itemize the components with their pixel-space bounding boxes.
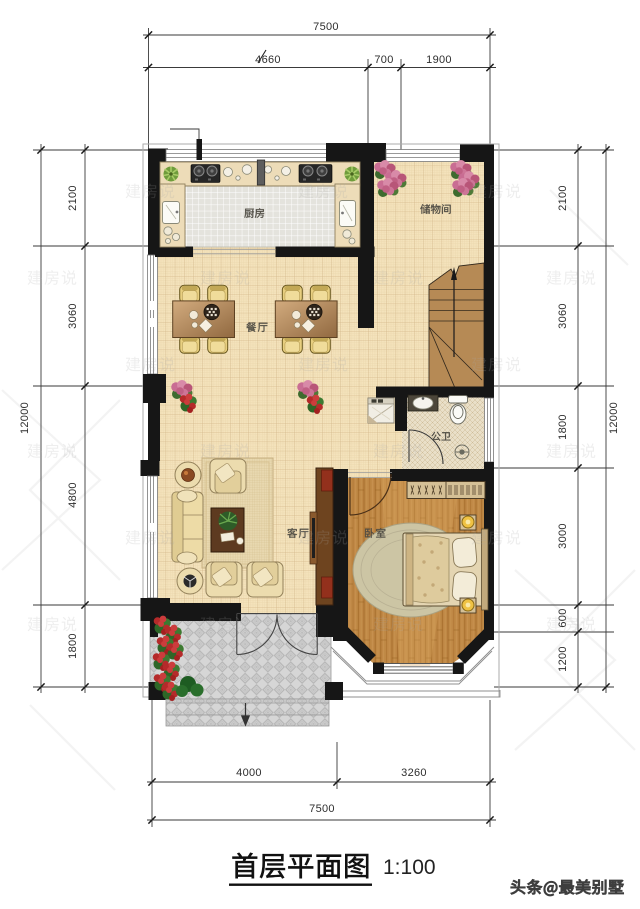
svg-text:12000: 12000: [19, 402, 31, 434]
svg-text:7500: 7500: [313, 21, 339, 33]
svg-text:700: 700: [374, 54, 393, 66]
svg-text:2100: 2100: [557, 185, 569, 211]
svg-text:7500: 7500: [309, 803, 335, 815]
svg-text:1200: 1200: [557, 646, 569, 672]
svg-text:1800: 1800: [67, 633, 79, 659]
svg-text:1800: 1800: [557, 414, 569, 440]
svg-text:1900: 1900: [426, 54, 452, 66]
svg-text:4660: 4660: [255, 54, 281, 66]
svg-text:4800: 4800: [67, 482, 79, 508]
svg-text:4000: 4000: [236, 767, 262, 779]
svg-text:3060: 3060: [557, 303, 569, 329]
svg-text:1:100: 1:100: [383, 856, 436, 879]
svg-text:3260: 3260: [401, 767, 427, 779]
svg-text:3060: 3060: [67, 303, 79, 329]
svg-text:3000: 3000: [557, 523, 569, 549]
svg-text:2100: 2100: [67, 185, 79, 211]
svg-text:12000: 12000: [608, 402, 620, 434]
